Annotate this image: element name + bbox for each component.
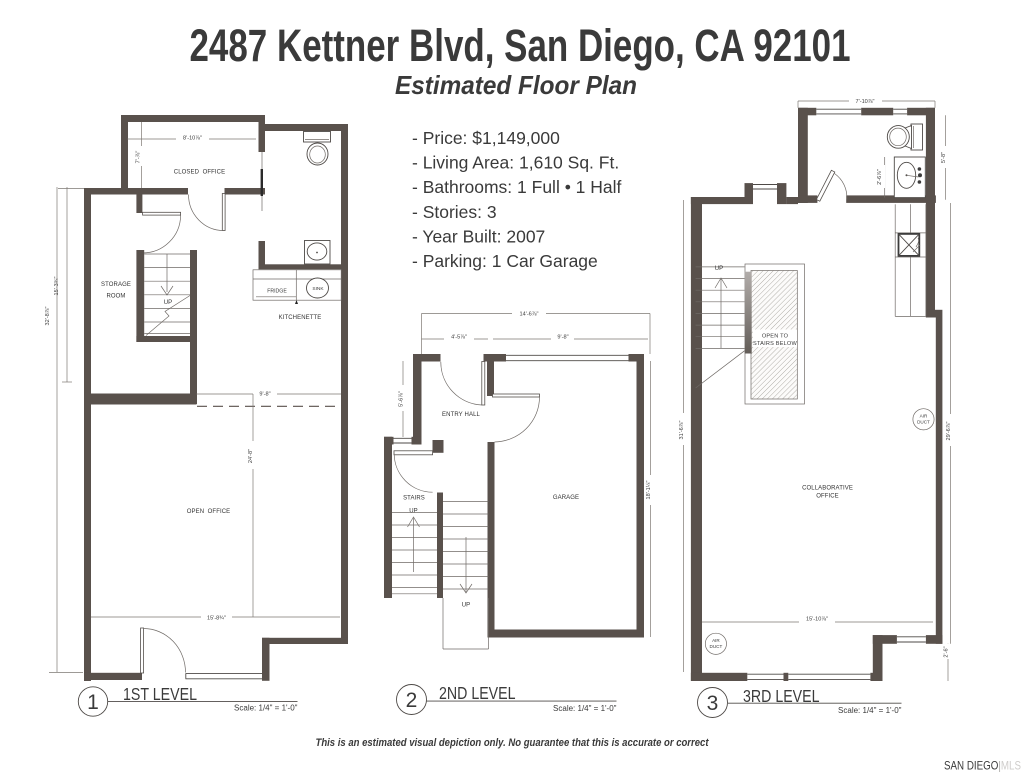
svg-text:UP: UP <box>462 603 471 609</box>
svg-text:7'-⅞": 7'-⅞" <box>136 151 142 164</box>
svg-text:2ND LEVEL: 2ND LEVEL <box>439 683 516 703</box>
svg-text:OFFICE: OFFICE <box>816 494 839 500</box>
svg-text:UP: UP <box>715 266 724 272</box>
svg-text:1ST LEVEL: 1ST LEVEL <box>123 684 197 704</box>
svg-text:FRIDGE: FRIDGE <box>267 289 287 295</box>
svg-text:2: 2 <box>406 689 418 712</box>
svg-text:- Living Area: 1,610 Sq. Ft.: - Living Area: 1,610 Sq. Ft. <box>412 153 619 173</box>
svg-text:DUCT: DUCT <box>710 644 723 649</box>
svg-text:- Bathrooms: 1 Full • 1 Half: - Bathrooms: 1 Full • 1 Half <box>412 177 622 197</box>
svg-text:DUCT: DUCT <box>917 420 930 425</box>
svg-text:24'-8": 24'-8" <box>248 449 254 463</box>
svg-text:15'-8¾": 15'-8¾" <box>207 616 226 622</box>
svg-text:GARAGE: GARAGE <box>553 495 579 501</box>
svg-text:5'-6⅞": 5'-6⅞" <box>399 391 405 407</box>
svg-text:1: 1 <box>87 691 99 714</box>
svg-text:2487 Kettner Blvd, San Diego,: 2487 Kettner Blvd, San Diego, CA 92101 <box>190 20 851 71</box>
svg-text:Scale: 1/4" = 1'-0": Scale: 1/4" = 1'-0" <box>838 706 902 715</box>
svg-text:9'-8": 9'-8" <box>259 391 270 397</box>
svg-text:29'-6⅞": 29'-6⅞" <box>946 422 952 441</box>
svg-text:8'-10⅞": 8'-10⅞" <box>183 136 202 142</box>
svg-text:5'-8": 5'-8" <box>941 152 947 163</box>
svg-text:ROOM: ROOM <box>106 294 125 300</box>
svg-text:COLLABORATIVE: COLLABORATIVE <box>802 486 853 492</box>
svg-text:AIR: AIR <box>712 638 720 643</box>
svg-text:CLOSED OFFICE: CLOSED OFFICE <box>174 170 225 176</box>
svg-text:STAIRS BELOW: STAIRS BELOW <box>753 341 797 347</box>
svg-text:STAIRS: STAIRS <box>403 496 425 502</box>
svg-text:UP: UP <box>164 300 173 306</box>
svg-text:- Parking: 1 Car Garage: - Parking: 1 Car Garage <box>412 251 598 271</box>
svg-text:15'-10⅞": 15'-10⅞" <box>806 617 828 623</box>
svg-text:32'-8⅞": 32'-8⅞" <box>45 307 51 326</box>
svg-text:7'-10⅞": 7'-10⅞" <box>856 99 875 105</box>
svg-text:3: 3 <box>707 692 719 715</box>
svg-text:2'-6": 2'-6" <box>944 646 950 657</box>
svg-text:Estimated Floor Plan: Estimated Floor Plan <box>395 70 637 100</box>
svg-text:31'-6⅞": 31'-6⅞" <box>679 421 685 440</box>
svg-text:18'-1¼": 18'-1¼" <box>646 481 652 500</box>
svg-text:2'-6⅞": 2'-6⅞" <box>877 169 883 185</box>
svg-text:AIR: AIR <box>920 414 928 419</box>
svg-text:STORAGE: STORAGE <box>101 282 131 288</box>
svg-text:OPEN OFFICE: OPEN OFFICE <box>187 509 231 515</box>
svg-text:- Stories: 3: - Stories: 3 <box>412 202 497 222</box>
svg-text:ENTRY HALL: ENTRY HALL <box>442 412 480 418</box>
svg-text:- Year Built: 2007: - Year Built: 2007 <box>412 226 545 246</box>
svg-text:14'-6⅞": 14'-6⅞" <box>520 312 539 318</box>
svg-text:Scale: 1/4" = 1'-0": Scale: 1/4" = 1'-0" <box>553 704 617 713</box>
svg-text:- Price: $1,149,000: - Price: $1,149,000 <box>412 128 560 148</box>
svg-text:SINK: SINK <box>312 286 324 292</box>
svg-text:KITCHENETTE: KITCHENETTE <box>279 315 322 321</box>
svg-text:9'-8": 9'-8" <box>557 334 568 340</box>
svg-text:This is an estimated visual de: This is an estimated visual depiction on… <box>316 737 710 749</box>
svg-text:Scale: 1/4" = 1'-0": Scale: 1/4" = 1'-0" <box>234 704 298 713</box>
svg-text:4'-5⅞": 4'-5⅞" <box>451 334 467 340</box>
svg-text:SAN DIEGO|MLS: SAN DIEGO|MLS <box>944 759 1021 773</box>
svg-text:OPEN TO: OPEN TO <box>762 334 789 340</box>
svg-text:UP: UP <box>409 509 418 515</box>
